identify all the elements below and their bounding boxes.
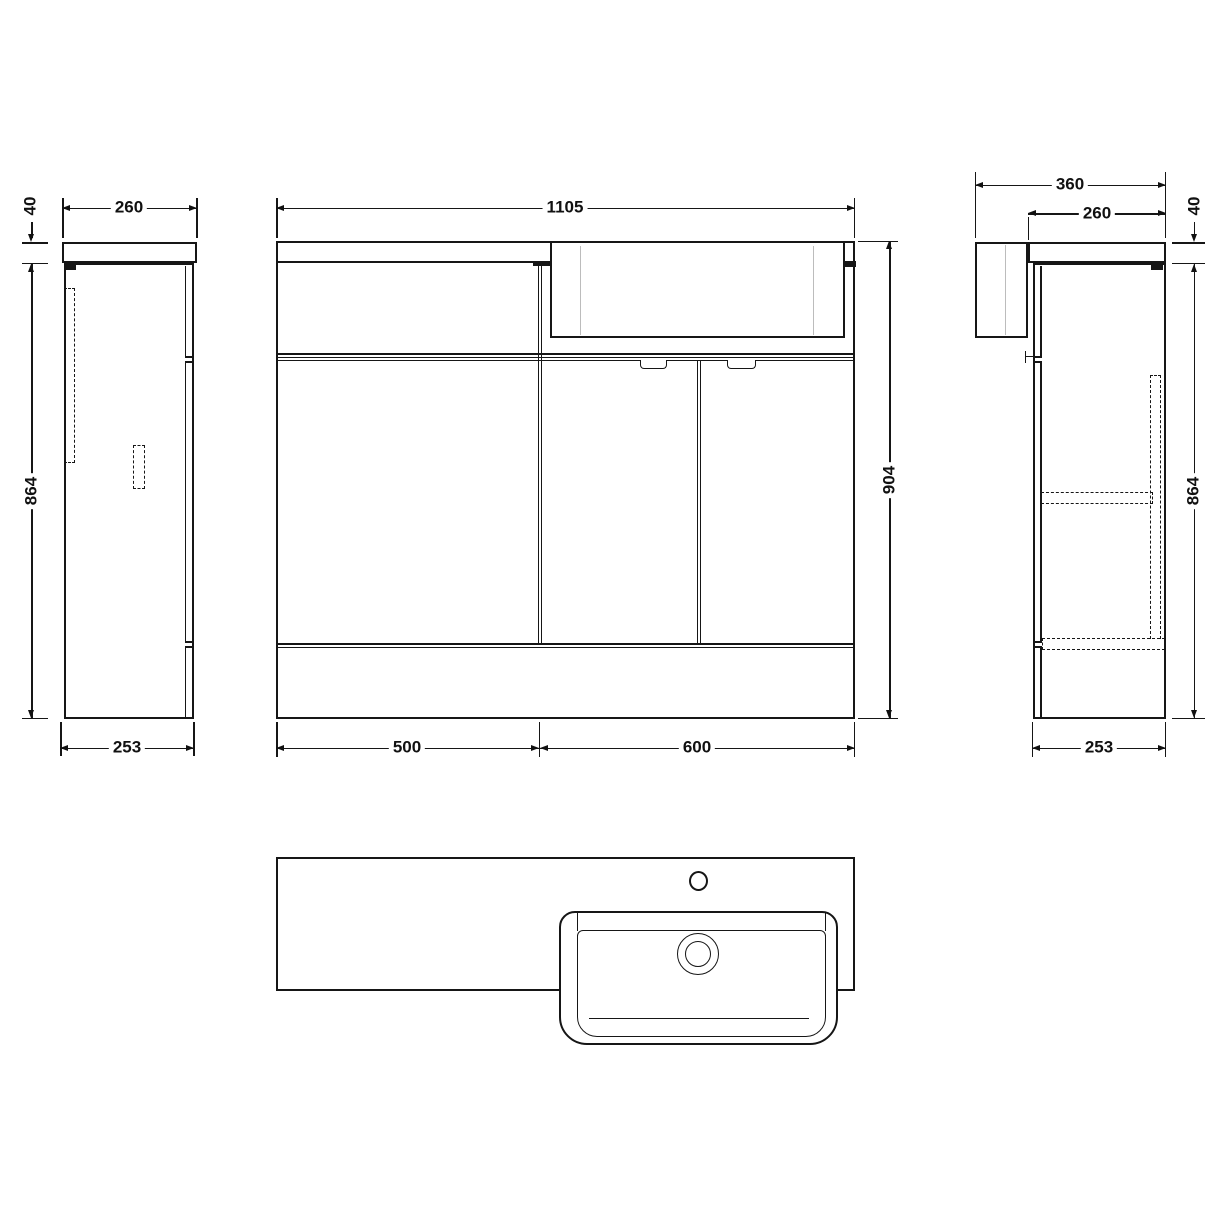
door-edge-line (1040, 266, 1042, 356)
dim-label-overall-depth: 360 (1052, 176, 1088, 195)
extension-line (276, 722, 278, 757)
extension-line (60, 722, 62, 756)
arrowhead-icon (1191, 264, 1197, 272)
door-joint-line (1034, 356, 1042, 358)
door-edge-line (185, 361, 187, 641)
plinth-top-line (277, 647, 854, 648)
door-edge-line (1040, 647, 1042, 717)
extension-line (22, 718, 48, 720)
dim-label-height: 864 (1185, 473, 1204, 509)
countertop-side (62, 242, 197, 263)
arrowhead-icon (847, 205, 855, 211)
extension-line (22, 263, 48, 265)
fixing-block-hidden-line (133, 445, 145, 489)
basin-rim-line (825, 913, 827, 931)
door-divider-line (700, 361, 702, 644)
dim-label-overall-width: 1105 (543, 199, 588, 218)
door-joint-line (185, 356, 194, 358)
dim-label-right-unit-width: 600 (679, 739, 715, 758)
arrowhead-icon (276, 745, 284, 751)
arrowhead-icon (1158, 210, 1166, 216)
dim-label-cabinet-depth: 253 (1081, 739, 1117, 758)
arrowhead-icon (28, 234, 34, 242)
arrowhead-icon (60, 745, 68, 751)
arrowhead-icon (1032, 745, 1040, 751)
arrowhead-icon (28, 264, 34, 272)
basin-front (550, 243, 845, 338)
arrowhead-icon (62, 205, 70, 211)
door-joint-line (185, 361, 194, 363)
technical-drawing-canvas: 260 40 864 253 (0, 0, 1224, 1224)
door-joint-line (185, 646, 194, 648)
bottom-panel-hidden-line (1042, 638, 1165, 651)
arrowhead-icon (1191, 710, 1197, 718)
extension-line (1028, 217, 1030, 240)
back-panel-hidden-line (1150, 375, 1161, 639)
fixing-clip (64, 265, 76, 270)
dimension-line (276, 748, 855, 750)
arrowhead-icon (847, 745, 855, 751)
extension-line (539, 722, 541, 757)
basin-rim-line (577, 913, 579, 931)
dim-label-height: 864 (23, 473, 42, 509)
arrowhead-icon (1158, 745, 1166, 751)
arrowhead-icon (1158, 182, 1166, 188)
shelf-hidden-line (1041, 492, 1153, 504)
arrowhead-icon (186, 745, 194, 751)
extension-line (1032, 722, 1034, 757)
countertop-side (1028, 242, 1166, 263)
dim-label-left-unit-width: 500 (389, 739, 425, 758)
arrowhead-icon (1028, 210, 1036, 216)
door-edge-line (185, 266, 187, 356)
arrowhead-icon (886, 241, 892, 249)
door-handle-recess (640, 360, 667, 369)
extension-line (854, 722, 856, 757)
dim-label-counter-depth: 260 (111, 199, 147, 218)
extension-line (22, 242, 48, 244)
hinge-plate-hidden-line (64, 288, 75, 463)
basin-curve-line (580, 246, 581, 335)
rail-line (277, 353, 854, 355)
unit-divider-line (538, 264, 540, 643)
dim-label-counter-depth: 260 (1079, 204, 1115, 223)
door-edge-line (185, 647, 187, 717)
dim-label-cabinet-depth: 253 (109, 739, 145, 758)
arrowhead-icon (189, 205, 197, 211)
door-joint-line (1034, 646, 1042, 648)
door-joint-line (1034, 361, 1042, 363)
door-joint-line (185, 641, 194, 643)
arrowhead-icon (1191, 234, 1197, 242)
tap-hole (689, 871, 708, 891)
basin-floor-line (589, 1018, 809, 1020)
arrowhead-icon (531, 745, 539, 751)
arrowhead-icon (975, 182, 983, 188)
basin-side (975, 242, 1028, 338)
extension-line (1172, 242, 1205, 244)
dim-label-counter-thickness: 40 (22, 193, 41, 220)
door-handle-recess (727, 360, 756, 369)
door-divider-line (697, 361, 699, 644)
cabinet-side-panel (64, 263, 194, 719)
fixing-clip (1151, 265, 1163, 270)
arrowhead-icon (540, 745, 548, 751)
extension-line (1165, 722, 1167, 757)
unit-divider-line (541, 264, 543, 643)
arrowhead-icon (28, 710, 34, 718)
rail-line (277, 357, 854, 358)
dim-label-counter-thickness: 40 (1186, 193, 1205, 220)
dim-label-overall-height: 904 (881, 462, 900, 498)
door-bottom-line (277, 643, 854, 645)
extension-line (1172, 718, 1205, 720)
basin-curve-line (1005, 245, 1006, 335)
counter-edge-shadow (533, 261, 551, 267)
arrowhead-icon (276, 205, 284, 211)
extension-line (193, 722, 195, 756)
hinge-clip (1025, 356, 1034, 358)
basin-curve-line (813, 246, 814, 335)
waste-inner-circle (685, 941, 711, 967)
door-joint-line (1034, 641, 1042, 643)
arrowhead-icon (886, 710, 892, 718)
door-top-line (277, 360, 854, 362)
counter-edge-shadow (845, 261, 856, 268)
extension-line (1172, 263, 1205, 265)
